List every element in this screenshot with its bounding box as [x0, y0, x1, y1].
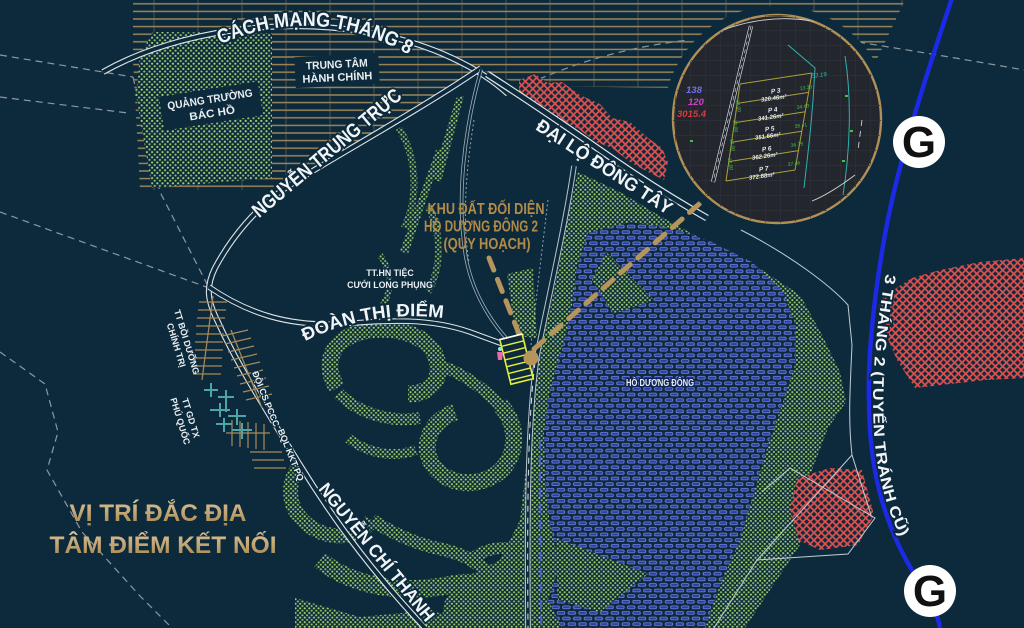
svg-text:120: 120 [688, 97, 705, 108]
svg-text:TÂM ĐIỂM KẾT NỐI: TÂM ĐIỂM KẾT NỐI [50, 531, 277, 559]
svg-text:CƯỚI LONG PHỤNG: CƯỚI LONG PHỤNG [347, 279, 433, 290]
svg-text:HỒ DƯƠNG ĐÔNG: HỒ DƯƠNG ĐÔNG [626, 376, 694, 389]
svg-text:TT.HN TIỆC: TT.HN TIỆC [366, 267, 414, 278]
svg-text:HỒ DƯƠNG ĐÔNG 2: HỒ DƯƠNG ĐÔNG 2 [424, 217, 538, 236]
svg-text:VỊ TRÍ ĐẮC ĐỊA: VỊ TRÍ ĐẮC ĐỊA [70, 499, 247, 527]
svg-text:138: 138 [686, 85, 703, 96]
svg-text:G: G [902, 118, 936, 167]
svg-text:3015.4: 3015.4 [677, 109, 707, 120]
svg-text:(QUY HOẠCH): (QUY HOẠCH) [444, 236, 531, 253]
svg-text:KHU ĐẤT ĐỐI DIỆN: KHU ĐẤT ĐỐI DIỆN [428, 198, 545, 218]
svg-text:G: G [913, 567, 947, 616]
